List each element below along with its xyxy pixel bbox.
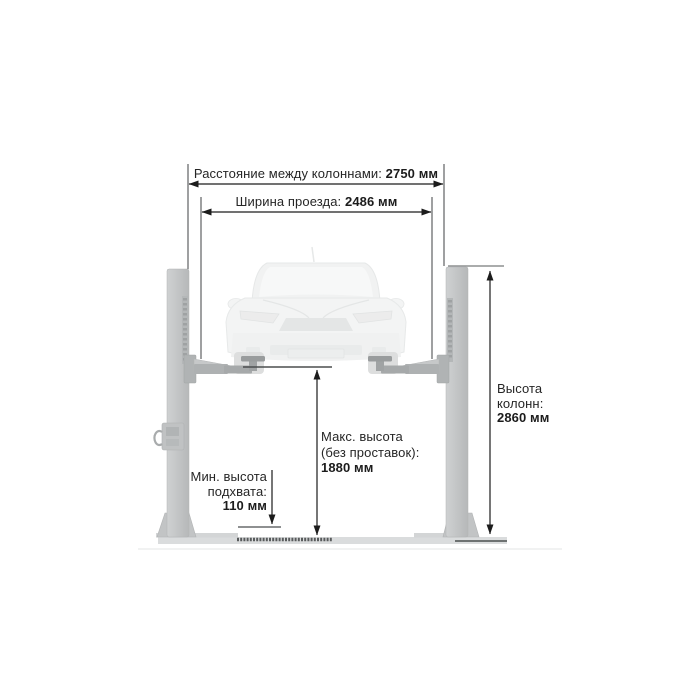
min-pickup-text-line1: Мин. высота: [191, 469, 267, 484]
right-lift-pad: [368, 356, 392, 362]
label-min-pickup-height: Мин. высота подхвата: 110 мм: [150, 470, 267, 514]
max-height-text-line1: Макс. высота: [321, 429, 403, 444]
label-column-height: Высота колонн: 2860 мм: [497, 382, 549, 426]
label-column-spacing: Расстояние между колоннами: 2750 мм: [188, 166, 444, 181]
label-drive-width: Ширина проезда: 2486 мм: [201, 194, 432, 209]
max-height-text-line2: (без проставок):: [321, 445, 419, 460]
car-silhouette: [226, 247, 406, 374]
right-lift-arm: [368, 355, 449, 383]
left-lift-arm: [184, 355, 265, 383]
column-spacing-value: 2750 мм: [386, 166, 438, 181]
left-lift-pad: [241, 356, 265, 362]
power-unit-detail-top: [166, 427, 179, 436]
floor-shadow: [138, 548, 562, 550]
left-arm-segment-1: [194, 364, 228, 374]
right-column: [443, 267, 479, 537]
power-unit-detail-bottom: [166, 439, 179, 446]
drive-width-text: Ширина проезда:: [236, 194, 342, 209]
column-height-text-line1: Высота: [497, 381, 542, 396]
lift-dimension-diagram: Расстояние между колоннами: 2750 мм Шири…: [0, 0, 700, 700]
car-grille: [279, 318, 353, 331]
column-spacing-text: Расстояние между колоннами:: [194, 166, 382, 181]
min-pickup-value: 110 мм: [223, 498, 267, 513]
column-height-text-line2: колонн:: [497, 396, 543, 411]
max-height-value: 1880 мм: [321, 460, 373, 475]
drive-width-value: 2486 мм: [345, 194, 397, 209]
right-pad-stem: [376, 361, 384, 371]
floor-band: [158, 537, 507, 544]
label-max-height: Макс. высота (без проставок): 1880 мм: [321, 429, 419, 476]
right-arm-segment-2: [381, 366, 409, 374]
column-height-value: 2860 мм: [497, 410, 549, 425]
power-unit-hook: [154, 431, 162, 445]
diagram-svg: [0, 0, 700, 700]
car-antenna: [312, 247, 314, 262]
right-arm-segment-1: [405, 364, 439, 374]
min-pickup-text-line2: подхвата:: [208, 484, 267, 499]
left-pad-stem: [249, 361, 257, 371]
car-windshield: [259, 267, 373, 297]
car-license-plate: [288, 349, 344, 358]
